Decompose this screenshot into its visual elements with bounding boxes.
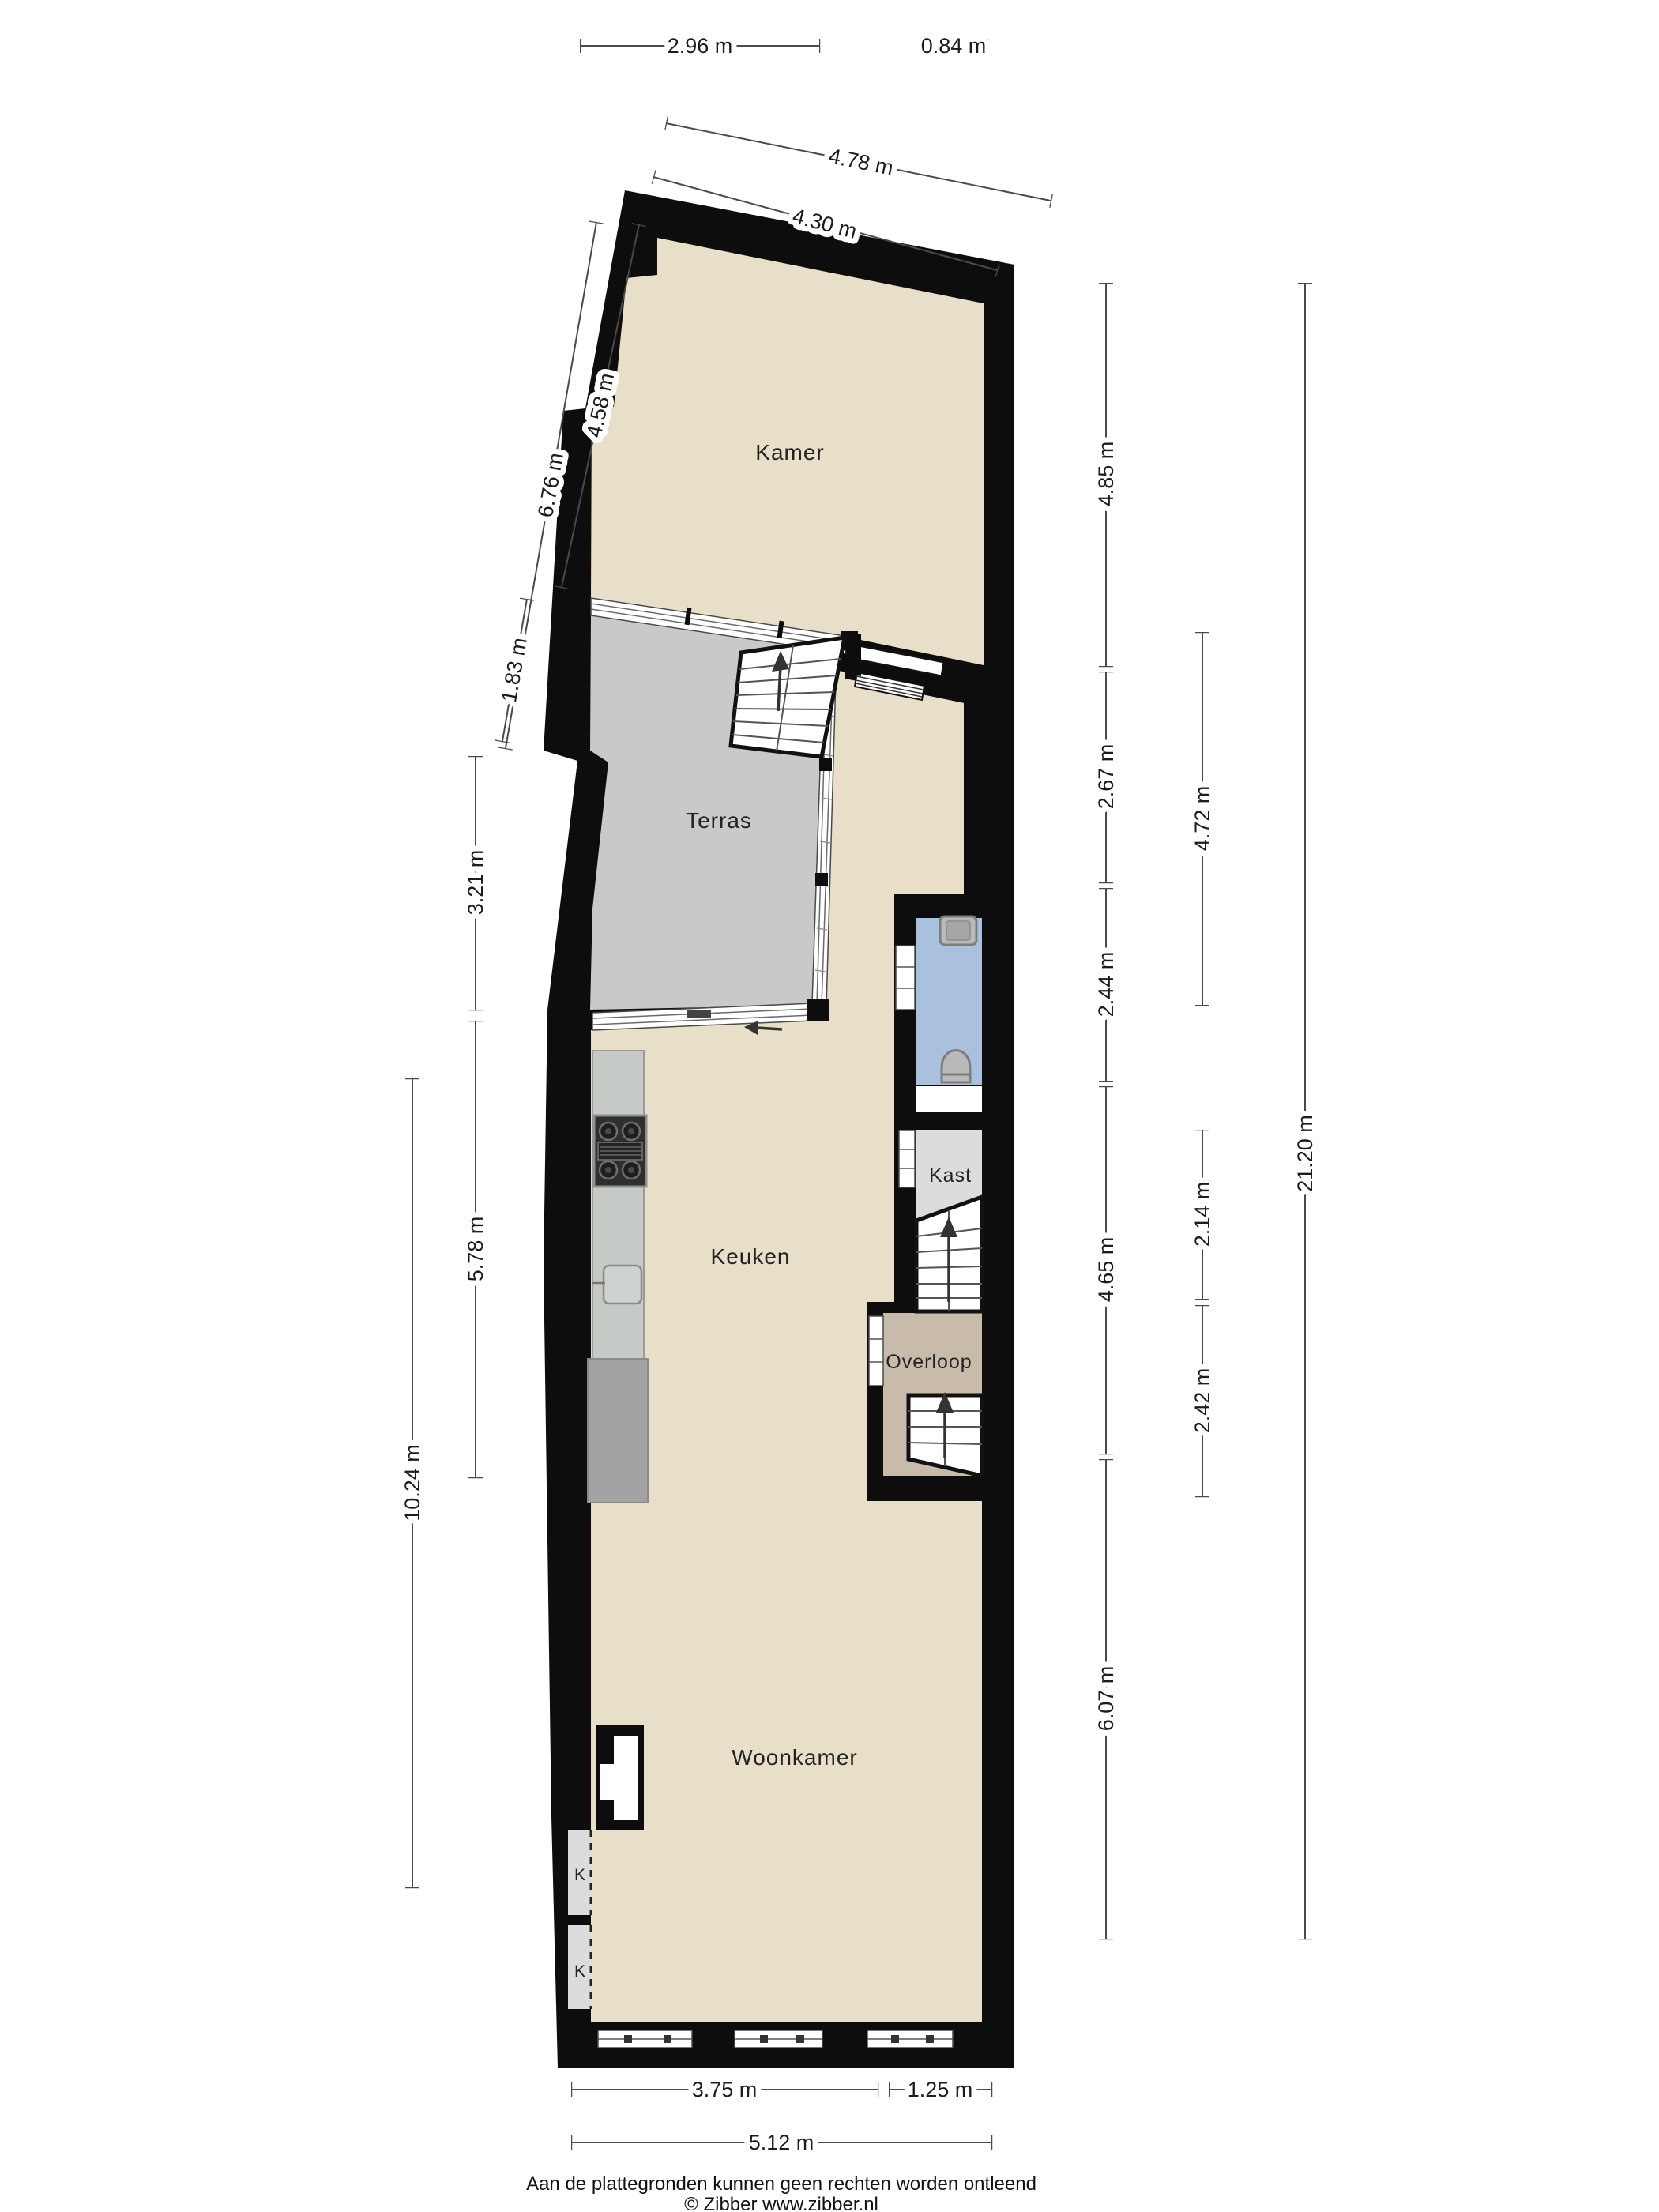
dim-472: 4.72 m [1191,786,1214,852]
glass-post [819,758,832,771]
railing-gate-mark [687,1010,711,1018]
kitchen-fixtures [588,1051,648,1503]
dim-1024: 10.24 m [401,1444,424,1522]
dim-125: 1.25 m [908,2078,973,2101]
overloop-label: Overloop [886,1351,972,1373]
railing-corner-post [807,999,829,1021]
stove [594,1115,646,1187]
dim-296: 2.96 m [668,34,733,58]
facade-window-3 [867,2030,953,2048]
floorplan-page: Kamer Terras Keuken Woonkamer Kast Overl… [0,0,1659,2212]
dim-607: 6.07 m [1094,1666,1118,1732]
dim-375: 3.75 m [692,2078,758,2101]
bathroom-sink [940,916,976,945]
stairs-overloop [908,1392,982,1476]
kast-window [899,1130,915,1187]
dim-244: 2.44 m [1094,952,1118,1018]
woonkamer-label: Woonkamer [732,1745,857,1770]
facade-window-2 [735,2030,822,2048]
kitchen-counter [592,1051,644,1359]
closet1-label: K [574,1866,585,1884]
toilet [942,1051,970,1083]
kast-label: Kast [929,1164,972,1187]
dim-321: 3.21 m [464,850,487,916]
dim-183: 1.83 m [497,636,532,705]
dim-465: 4.65 m [1094,1237,1118,1303]
dim-485: 4.85 m [1094,442,1118,507]
footer-copyright: © Zibber www.zibber.nl [684,2194,878,2212]
floorplan-drawing: Kamer Terras Keuken Woonkamer Kast Overl… [0,0,1659,2212]
dim-2120: 21.20 m [1293,1115,1317,1192]
dim-084: 0.84 m [921,34,987,58]
closet2-label: K [574,1962,585,1981]
keuken-label: Keuken [711,1244,791,1269]
bathroom-door-opening [916,1086,982,1112]
chimney [596,1725,644,1830]
footer-disclaimer: Aan de plattegronden kunnen geen rechten… [526,2173,1036,2195]
dim-578: 5.78 m [464,1217,487,1282]
terras-label: Terras [686,808,752,833]
facade-window-1 [598,2030,692,2048]
footer: Aan de plattegronden kunnen geen rechten… [526,2173,1036,2212]
dimensions-bottom: 3.75 m 1.25 m 5.12 m [571,2078,991,2154]
dimensions-right: 4.85 m 2.67 m 2.44 m 4.65 m 6.07 m 4.72 … [1094,283,1317,1939]
kitchen-cabinet [588,1359,648,1503]
dim-512: 5.12 m [749,2131,814,2154]
dim-214: 2.14 m [1191,1182,1214,1247]
dim-478: 4.78 m [827,144,896,180]
glass-post [815,873,828,886]
dim-242: 2.42 m [1191,1368,1214,1434]
dim-267: 2.67 m [1094,744,1118,810]
bathroom-window [896,946,915,1010]
kamer-label: Kamer [755,440,824,465]
overloop-window [869,1316,883,1386]
